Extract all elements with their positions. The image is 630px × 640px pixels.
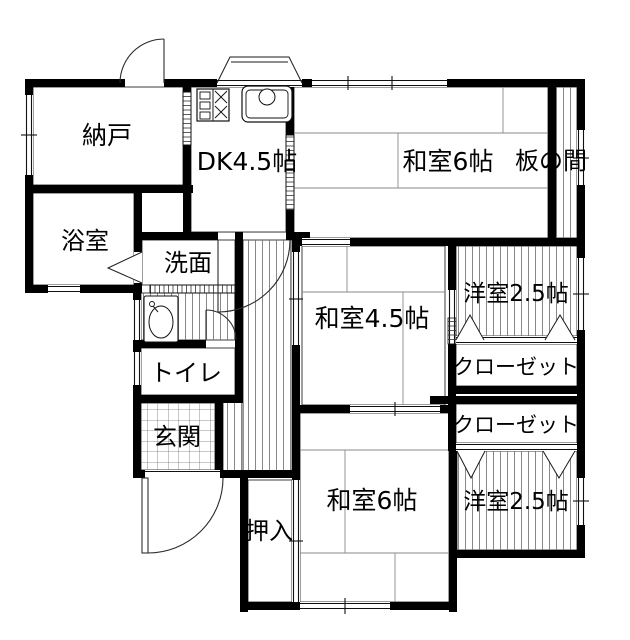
floor-plan: 納戸 DK4.5帖 和室6帖 板の間 浴室 洗面 トイレ 玄関 和室4.5帖 洋…	[0, 0, 630, 640]
wall-segment	[448, 238, 456, 290]
room-label-yokushitsu: 浴室	[61, 227, 109, 255]
window-toilet	[133, 352, 141, 385]
wall-segment	[220, 470, 300, 478]
washbasin-icon	[144, 296, 178, 342]
wall-segment	[390, 602, 449, 610]
corridor-wood-floor-lower	[223, 402, 243, 472]
kitchen-fixtures	[197, 86, 292, 122]
wall-segment	[25, 79, 125, 87]
room-label-senmen: 洗面	[164, 249, 212, 277]
wall-segment	[240, 602, 300, 610]
wall-segment	[294, 405, 350, 413]
room-label-nando: 納戸	[82, 121, 132, 150]
room-label-dk: DK4.5帖	[197, 147, 297, 176]
wall-segment	[448, 386, 585, 394]
room-label-washitsu45: 和室4.5帖	[315, 304, 430, 333]
wall-segment	[235, 232, 243, 293]
window-washroom	[133, 300, 141, 340]
sliding-door-washitsu45-right	[448, 290, 456, 344]
wall-segment	[25, 79, 33, 95]
wall-segment	[577, 330, 585, 478]
room-floors	[33, 87, 577, 602]
wall-segment	[292, 240, 300, 252]
bay-window	[217, 57, 302, 87]
wall-segment	[25, 285, 48, 293]
room-label-washitsu6-bottom: 和室6帖	[327, 486, 418, 515]
closet-door-2	[456, 443, 577, 451]
wall-segment	[134, 193, 142, 252]
room-label-genkan: 玄関	[153, 423, 201, 451]
room-label-closet-2: クローゼット	[453, 413, 579, 437]
wall-segment	[134, 283, 142, 293]
room-label-washitsu6-top: 和室6帖	[403, 147, 494, 176]
wall-segment	[134, 232, 218, 240]
wall-segment	[133, 395, 243, 403]
wall-segment	[577, 87, 585, 130]
wall-segment	[302, 79, 312, 87]
wall-segment	[447, 79, 585, 87]
window-bath	[48, 285, 80, 293]
door-entrance	[142, 470, 223, 553]
wall-segment	[133, 293, 141, 300]
wall-segment	[577, 185, 585, 258]
stove-icon	[197, 89, 229, 121]
wall-segment	[25, 185, 193, 193]
floor-plan-canvas: 納戸 DK4.5帖 和室6帖 板の間 浴室 洗面 トイレ 玄関 和室4.5帖 洋…	[0, 0, 630, 640]
wall-segment	[577, 525, 585, 558]
sliding-door-washitsu45-top	[302, 238, 350, 246]
room-label-itanoma: 板の間	[515, 147, 587, 175]
wall-segment	[449, 443, 457, 612]
corridor-wood-floor	[243, 240, 292, 472]
wall-segment	[80, 285, 142, 293]
wall-segment	[183, 145, 191, 240]
room-label-oshiire: 押入	[245, 517, 293, 545]
room-label-yoshitsu25-bottom: 洋室2.5帖	[463, 489, 569, 515]
sliding-door-senmen-hall	[150, 285, 235, 293]
wall-segment	[164, 79, 217, 87]
sliding-door-nando-dk	[183, 92, 191, 145]
room-label-yoshitsu25-top: 洋室2.5帖	[463, 281, 569, 307]
room-label-closet-1: クローゼット	[453, 355, 579, 379]
door-top-exterior	[120, 39, 164, 83]
room-label-toire: トイレ	[150, 359, 222, 387]
wall-segment	[183, 87, 191, 92]
wall-segment	[215, 395, 223, 478]
wall-segment	[133, 470, 145, 478]
sink-icon	[242, 86, 292, 122]
wall-segment	[449, 550, 585, 558]
